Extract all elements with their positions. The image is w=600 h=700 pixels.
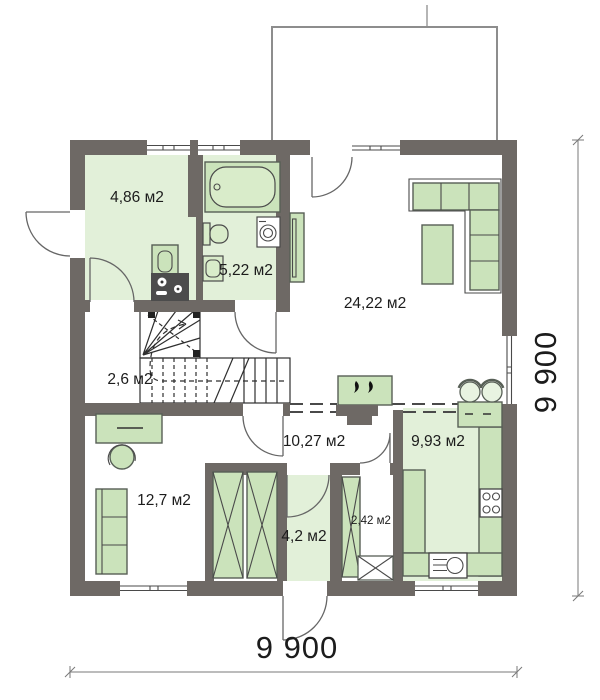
room-label-stair-hall: 2,6 м2 bbox=[107, 371, 152, 389]
dimension-line-bottom bbox=[65, 666, 522, 678]
bar-stool-2 bbox=[481, 380, 504, 402]
corner-sofa-top bbox=[413, 183, 499, 210]
wardrobe-1 bbox=[213, 472, 243, 578]
wall-top bbox=[70, 140, 517, 155]
wardrobe-2 bbox=[247, 472, 277, 578]
door-closet bbox=[360, 433, 390, 463]
utility-sink bbox=[152, 245, 178, 276]
door-bedroom bbox=[243, 416, 283, 456]
boiler-stove bbox=[151, 273, 189, 301]
floor-plan: 4,86 м2 5,22 м2 24,22 м2 2,6 м2 10,27 м2… bbox=[0, 0, 600, 700]
door-terrace bbox=[312, 157, 352, 197]
room-label-hallway: 4,86 м2 bbox=[110, 189, 164, 207]
staircase bbox=[140, 311, 290, 403]
bar-counter bbox=[458, 402, 502, 427]
toilet bbox=[203, 223, 228, 245]
room-label-bedroom: 12,7 м2 bbox=[137, 492, 191, 510]
floor-plan-drawing bbox=[0, 0, 600, 700]
terrace-outline bbox=[272, 5, 497, 142]
fireplace bbox=[336, 376, 392, 425]
stove bbox=[480, 489, 502, 517]
bar-stool-1 bbox=[459, 380, 482, 402]
bedroom-sofa bbox=[96, 489, 127, 574]
kitchen-counter-left bbox=[403, 470, 425, 553]
room-label-closet: 2,42 м2 bbox=[351, 515, 391, 527]
dimension-height-label: 9 900 bbox=[528, 331, 564, 414]
desk-chair bbox=[108, 445, 135, 469]
washing-machine bbox=[257, 217, 280, 247]
room-label-corridor: 10,27 м2 bbox=[283, 433, 345, 451]
dimension-width-label: 9 900 bbox=[256, 630, 339, 666]
room-label-kitchen: 9,93 м2 bbox=[411, 433, 465, 451]
kitchen-sink bbox=[429, 553, 467, 578]
room-label-vestibule: 4,2 м2 bbox=[281, 528, 326, 546]
coffee-table bbox=[422, 225, 453, 284]
door-bathroom bbox=[235, 312, 276, 353]
dimension-line-right bbox=[572, 135, 584, 601]
corner-sofa-side bbox=[470, 210, 499, 290]
door-entrance bbox=[26, 212, 70, 256]
wardrobe-3 bbox=[342, 477, 360, 577]
room-label-living: 24,22 м2 bbox=[344, 295, 406, 313]
shoe-cabinet bbox=[358, 556, 393, 580]
room-label-bathroom: 5,22 м2 bbox=[219, 262, 273, 280]
